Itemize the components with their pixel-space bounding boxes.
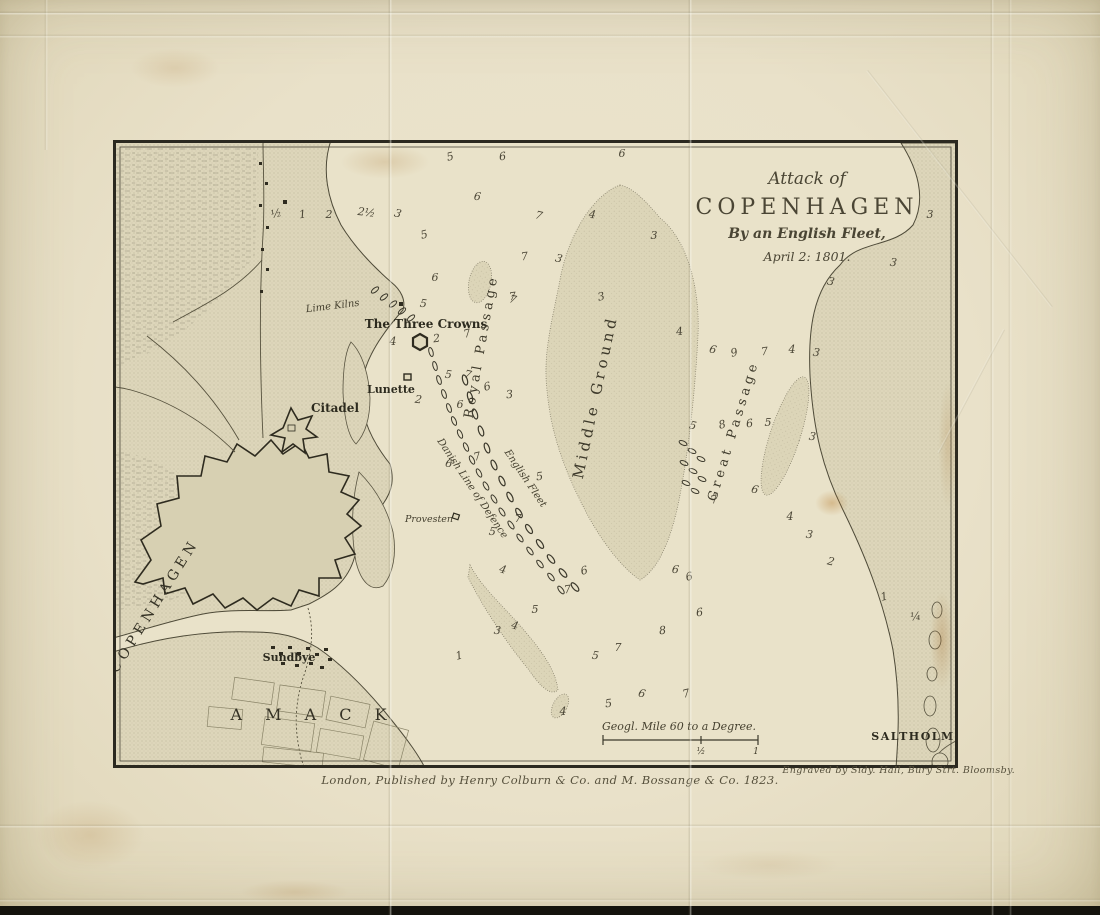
sounding: 3 <box>651 229 658 242</box>
publisher-imprint: London, Published by Henry Colburn & Co.… <box>260 773 840 787</box>
photo-of-antique-map: { "title": { "line1": "Attack of", "line… <box>0 0 1100 915</box>
scale-label: Geogl. Mile 60 to a Degree. <box>602 720 756 733</box>
lunette-fort <box>404 374 411 380</box>
islet <box>932 602 942 618</box>
sounding: 4 <box>389 335 397 348</box>
sounding: 7 <box>515 512 522 525</box>
scale-one: 1 <box>753 747 759 757</box>
sounding: 4 <box>788 343 796 356</box>
title-english-fleet: By an English Fleet, <box>727 226 886 242</box>
label-citadel: Citadel <box>311 401 359 415</box>
label-saltholm: SALTHOLM <box>871 730 954 743</box>
sounding: 3 <box>927 208 934 221</box>
map-plate: ½122½35666757643373577245763626757546753… <box>113 140 958 768</box>
sounding: 6 <box>619 147 626 160</box>
sounding: 2 <box>431 332 441 346</box>
sounding: 4 <box>587 208 597 222</box>
islet <box>927 667 937 681</box>
label-sundbye: Sundbye <box>263 651 316 664</box>
sounding: 5 <box>765 416 772 429</box>
islet <box>924 696 936 716</box>
label-provesten: Provesten <box>404 514 453 525</box>
sounding: ¼ <box>909 609 921 623</box>
label-amack: A M A C K <box>229 705 395 724</box>
title-date: April 2: 1801. <box>763 249 851 264</box>
title-attack-of: Attack of <box>766 169 848 189</box>
engraver-credit: Engraved by Sidy. Hall, Bury Strt. Bloom… <box>780 765 1015 776</box>
label-three-crowns: The Three Crowns <box>365 317 488 331</box>
lime-kiln-building <box>399 302 403 306</box>
sounding: 4 <box>786 510 794 523</box>
map-canvas: ½122½35666757643373577245763626757546753… <box>113 140 958 768</box>
islet <box>929 631 941 649</box>
label-lunette: Lunette <box>367 383 415 396</box>
photo-edge-shadow <box>0 906 1100 915</box>
provesten-fort <box>452 513 459 520</box>
sounding: 2 <box>325 208 333 221</box>
sounding: 5 <box>532 603 539 616</box>
sounding: 6 <box>432 271 439 284</box>
title-copenhagen: COPENHAGEN <box>696 195 919 220</box>
sounding: 2½ <box>356 205 376 220</box>
sounding: 4 <box>674 325 684 339</box>
scale-half: ½ <box>697 746 706 757</box>
sounding: 4 <box>559 705 567 718</box>
sounding: 7 <box>615 641 622 654</box>
three-crowns-fort <box>413 334 427 350</box>
